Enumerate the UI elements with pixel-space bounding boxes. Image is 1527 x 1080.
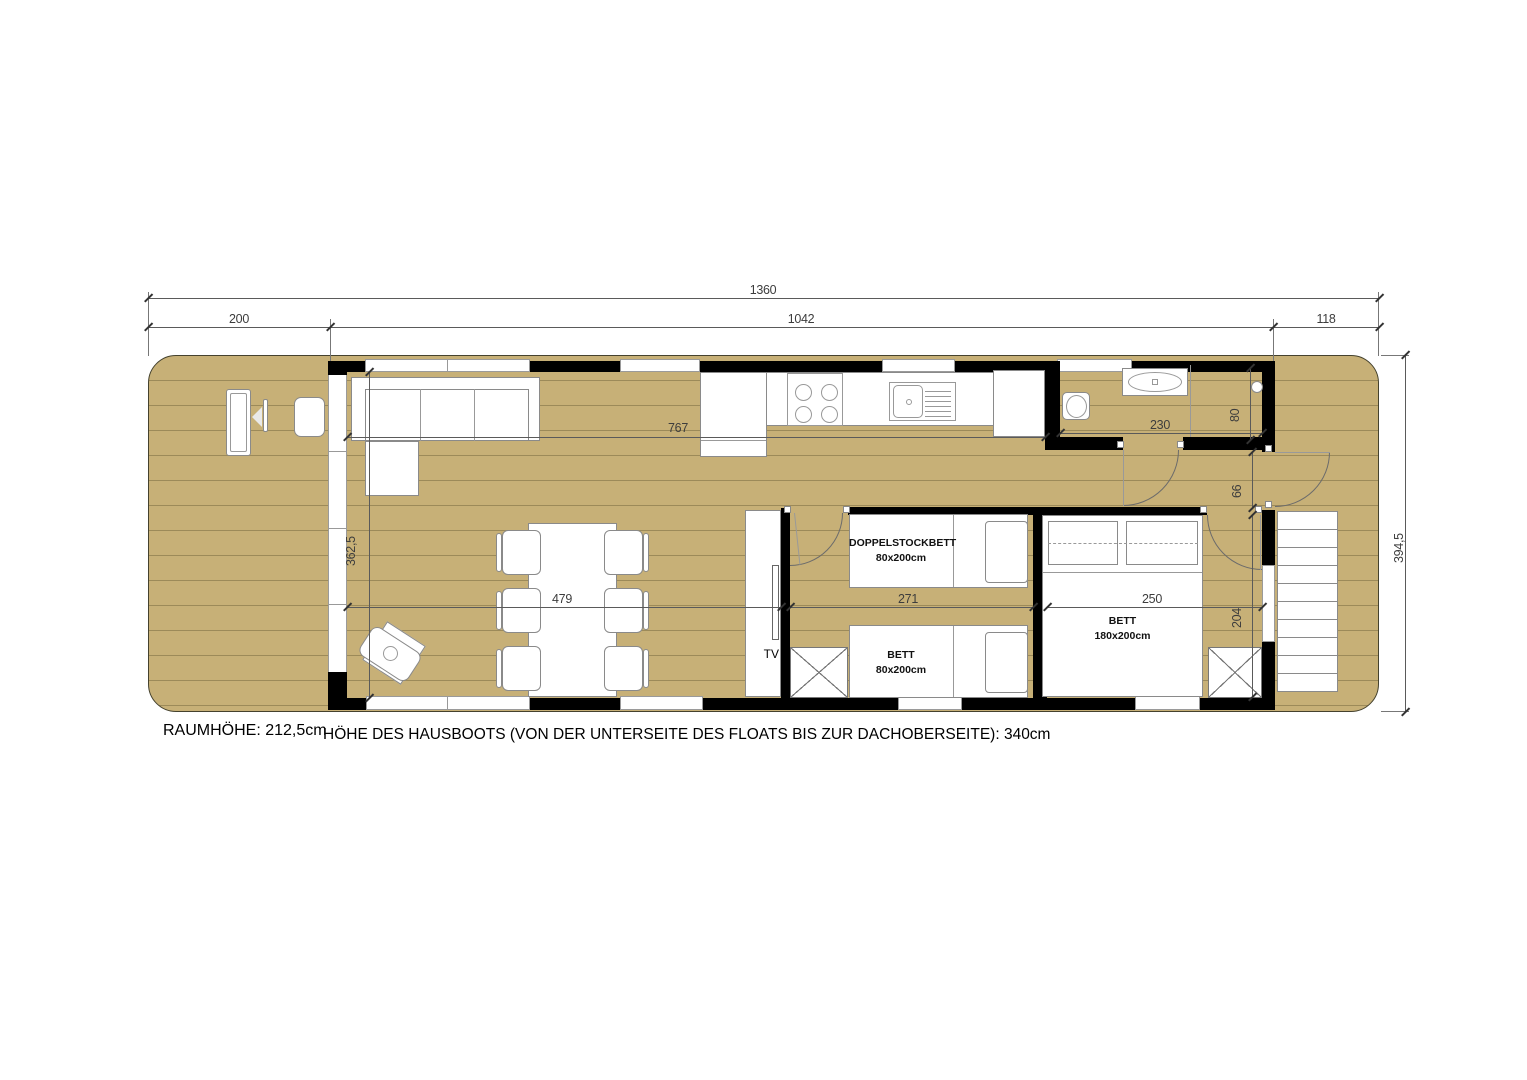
- chair-back: [496, 591, 502, 630]
- double-bed-fold: [1043, 572, 1202, 573]
- door-jamb: [1177, 441, 1184, 448]
- door-jamb: [843, 506, 850, 513]
- window: [1057, 359, 1132, 372]
- floorplan-canvas: 1360 200 1042 118 394,5: [0, 0, 1527, 1080]
- sink-drain: [906, 399, 912, 405]
- dim-kids-room-label: 271: [880, 592, 936, 606]
- bunk-bed-size: 80x200cm: [849, 551, 953, 566]
- bunk-bed-fold: [953, 515, 954, 587]
- roof-stair: [1277, 511, 1338, 692]
- burner: [795, 384, 812, 401]
- dim-hallway-label: 66: [1230, 462, 1244, 498]
- dim-line-kids-room: [790, 607, 1033, 608]
- chair: [604, 588, 643, 633]
- wood-stove-ring: [383, 646, 398, 661]
- terrace-grill-bar: [263, 399, 268, 432]
- door-jamb: [1200, 506, 1207, 513]
- dim-master-depth-label: 204: [1230, 580, 1244, 628]
- shower-drain: [1251, 381, 1263, 393]
- door-jamb: [1265, 501, 1272, 508]
- faucet: [1152, 379, 1158, 385]
- single-bed-label: BETT 80x200cm: [849, 648, 953, 678]
- wall-right: [1262, 642, 1275, 710]
- dim-line-sections: [148, 327, 1379, 328]
- wall-corner: [328, 361, 347, 375]
- dim-line-bathroom-depth: [1250, 368, 1251, 440]
- kitchen-fridge: [993, 370, 1045, 437]
- wall-bath-bottom: [1045, 437, 1123, 450]
- bunk-bed-pillow: [985, 521, 1028, 583]
- burner: [795, 406, 812, 423]
- single-bed-size: 80x200cm: [849, 663, 953, 678]
- window-mullion: [447, 360, 448, 371]
- chair: [502, 646, 541, 691]
- dim-line-total: [148, 298, 1379, 299]
- double-bed-label: BETT 180x200cm: [1042, 614, 1203, 644]
- dim-kitchen-run-label: 767: [650, 421, 706, 435]
- double-bed-size: 180x200cm: [1042, 629, 1203, 644]
- extension-line: [1378, 292, 1379, 356]
- dim-bathroom-label: 230: [1132, 418, 1188, 432]
- dim-line-kitchen-run: [347, 437, 1045, 438]
- tv-screen: [772, 565, 779, 640]
- dim-width-label: 394,5: [1392, 505, 1406, 563]
- wall-top: [530, 361, 620, 372]
- entrance-door-leaf: [1275, 452, 1330, 453]
- window: [366, 696, 530, 710]
- wall-right: [1262, 361, 1275, 452]
- dim-total-label: 1360: [733, 283, 793, 297]
- single-bed-fold: [953, 626, 954, 697]
- pillow-dash: [1048, 543, 1198, 544]
- dim-line-living-length: [347, 607, 781, 608]
- bunk-bed-label: DOPPELSTOCKBETT 80x200cm: [849, 536, 953, 566]
- bath-partition: [1190, 365, 1191, 437]
- note-boat-height: HÖHE DES HAUSBOOTS (VON DER UNTERSEITE D…: [323, 726, 1050, 744]
- window: [898, 696, 962, 710]
- dim-cabin-label: 1042: [771, 312, 831, 326]
- wardrobe: [790, 647, 848, 698]
- wall-bottom: [530, 698, 620, 710]
- chair-back: [643, 591, 649, 630]
- dim-tick: [1375, 293, 1384, 302]
- dim-living-width-label: 362,5: [344, 508, 358, 566]
- glass-pane-divider: [329, 604, 346, 605]
- sofa-seat-divider: [420, 389, 421, 441]
- chair: [604, 646, 643, 691]
- wall-master-top: [1047, 507, 1207, 515]
- kitchen-tall-cabinet: [700, 372, 767, 457]
- single-bed-name: BETT: [849, 648, 953, 663]
- sofa-seat-divider: [474, 389, 475, 441]
- door-jamb: [1265, 445, 1272, 452]
- burner: [821, 384, 838, 401]
- window: [882, 359, 955, 372]
- wardrobe: [1208, 647, 1262, 698]
- chair-back: [643, 649, 649, 688]
- dim-bathroom-depth-label: 80: [1228, 386, 1242, 422]
- burner: [821, 406, 838, 423]
- wall-bottom: [328, 698, 366, 710]
- glass-pane-divider: [329, 451, 346, 452]
- dim-living-length-label: 479: [534, 592, 590, 606]
- chair-back: [496, 533, 502, 572]
- dim-master-room-label: 250: [1124, 592, 1180, 606]
- double-bed-name: BETT: [1042, 614, 1203, 629]
- dim-line-hallway: [1252, 452, 1253, 508]
- dim-line-master-depth: [1252, 515, 1253, 697]
- window: [620, 696, 703, 710]
- wall-bottom: [962, 698, 1135, 710]
- door-jamb: [1117, 441, 1124, 448]
- chair-back: [643, 533, 649, 572]
- terrace-grill-inner: [230, 393, 247, 452]
- chair: [502, 530, 541, 575]
- dim-line-living-width: [369, 372, 370, 698]
- dim-terrace-label: 200: [209, 312, 269, 326]
- chair: [604, 530, 643, 575]
- dim-rear-deck-label: 118: [1296, 312, 1356, 326]
- sink-drainer: [925, 387, 951, 417]
- window: [620, 359, 700, 372]
- wall-bottom: [703, 698, 898, 710]
- tv-label: TV: [749, 647, 779, 661]
- toilet-bowl: [1066, 395, 1087, 418]
- door-jamb: [784, 506, 791, 513]
- window: [1135, 696, 1200, 710]
- kitchen-cabinet-divider: [701, 440, 766, 441]
- bath-door-leaf: [1123, 450, 1124, 506]
- master-door-leaf: [1260, 515, 1261, 570]
- wall-top: [700, 361, 882, 372]
- dim-line-bathroom: [1060, 433, 1262, 434]
- sofa-seats: [365, 389, 529, 441]
- terrace-seat: [294, 397, 325, 437]
- chair-back: [496, 649, 502, 688]
- wall-right: [1262, 510, 1275, 565]
- dim-tick: [1375, 322, 1384, 331]
- window-mullion: [447, 697, 448, 709]
- note-room-height: RAUMHÖHE: 212,5cm: [163, 722, 327, 740]
- sofa-chaise: [365, 441, 419, 496]
- single-bed-pillow: [985, 632, 1028, 693]
- bunk-bed-name: DOPPELSTOCKBETT: [849, 536, 953, 551]
